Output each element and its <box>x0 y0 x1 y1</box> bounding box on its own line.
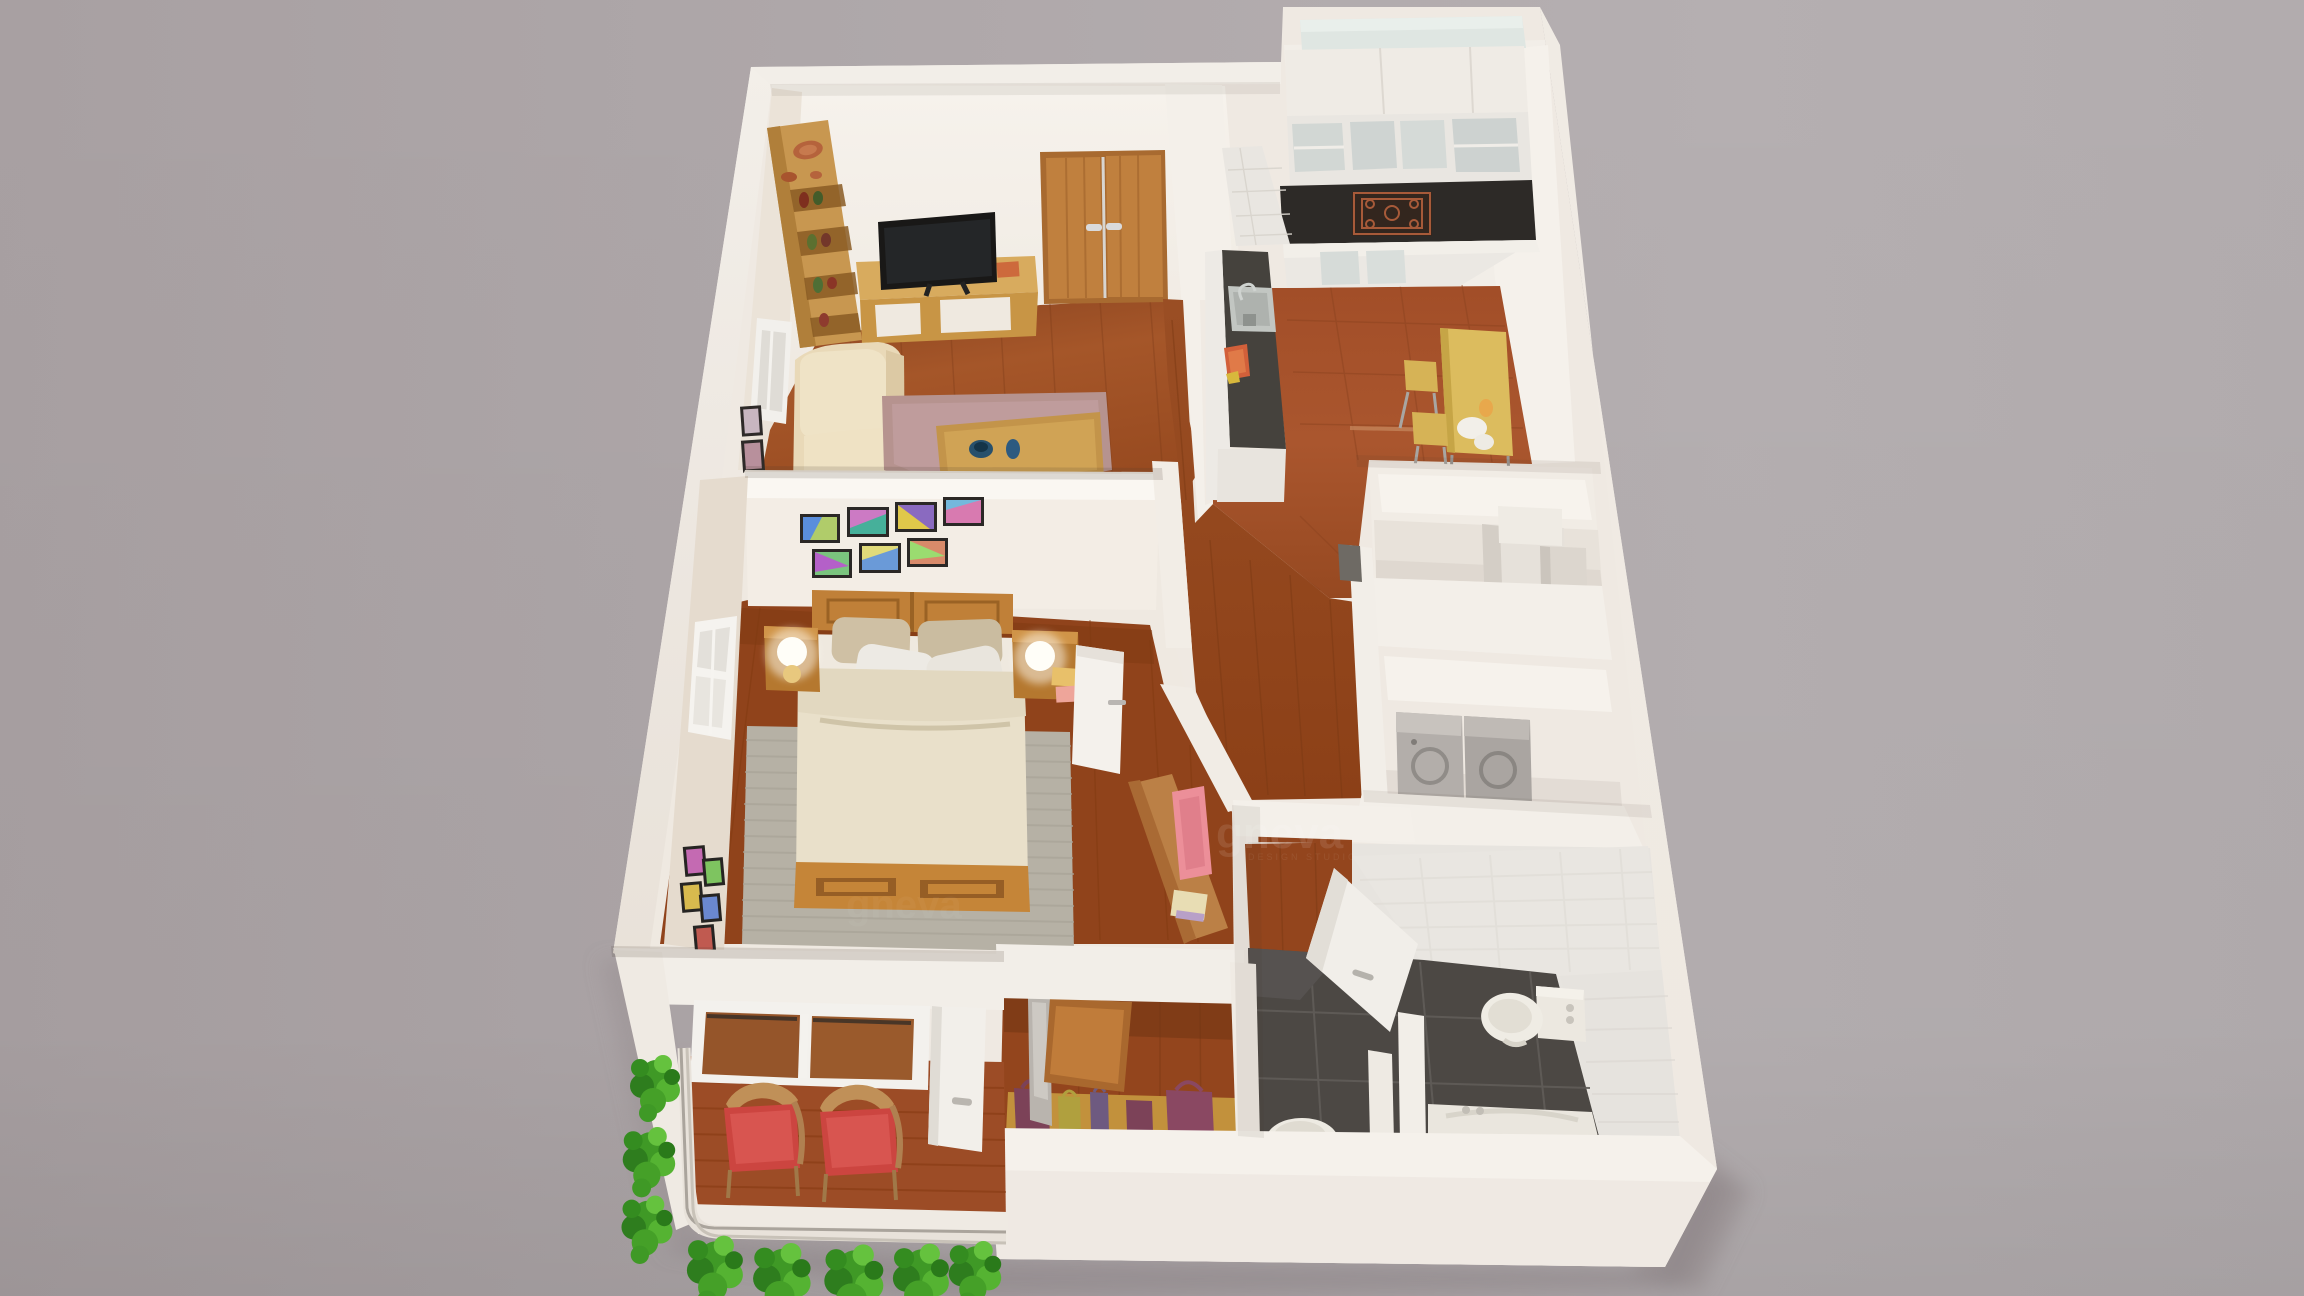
svg-text:DESIGN STUDIO: DESIGN STUDIO <box>1248 852 1358 862</box>
svg-text:gneva: gneva <box>846 883 962 927</box>
svg-text:gneva: gneva <box>1216 809 1344 858</box>
